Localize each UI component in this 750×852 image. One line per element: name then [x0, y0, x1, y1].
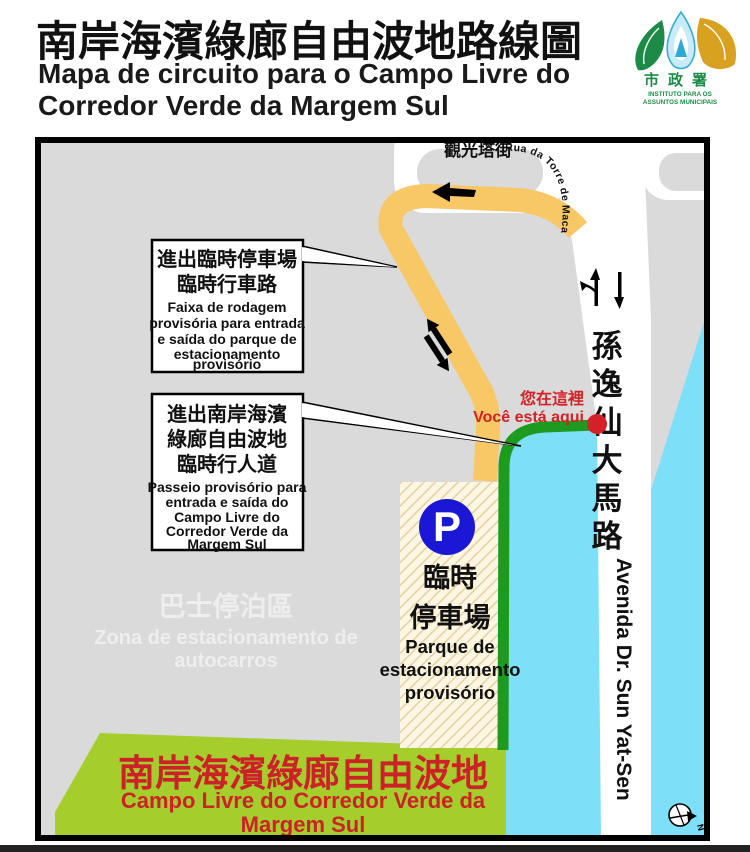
svg-text:entrada e saída do: entrada e saída do [166, 494, 289, 510]
you-are-here-latin: Você está aqui [473, 409, 584, 426]
svg-text:臨時行車路: 臨時行車路 [177, 272, 278, 296]
svg-text:Margem Sul: Margem Sul [187, 536, 266, 552]
parking-label-cjk2: 停車場 [410, 602, 491, 633]
svg-text:Passeio provisório para: Passeio provisório para [148, 479, 307, 495]
svg-text:路: 路 [592, 519, 624, 554]
water-left [504, 428, 601, 838]
svg-text:進出南岸海濱: 進出南岸海濱 [167, 402, 287, 426]
field-label-pt1: Campo Livre do Corredor Verde da [121, 788, 486, 813]
svg-text:e saída do parque de: e saída do parque de [157, 331, 296, 347]
svg-text:馬: 馬 [592, 481, 623, 516]
you-are-here-marker [587, 414, 607, 434]
svg-text:Faixa de rodagem: Faixa de rodagem [167, 299, 286, 315]
route-map: 巴士停泊區 Zona de estacionamento de autocarr… [0, 0, 750, 852]
svg-text:逸: 逸 [592, 367, 623, 402]
svg-text:provisório: provisório [193, 356, 261, 372]
parking-icon-letter: P [433, 503, 461, 550]
svg-text:provisória para entrada: provisória para entrada [149, 315, 305, 331]
avenue-name-latin: Avenida Dr. Sun Yat-Sen [612, 558, 635, 801]
svg-text:大: 大 [592, 443, 623, 478]
bottom-divider [0, 845, 750, 852]
watermark-pt-line1: Zona de estacionamento de [94, 627, 357, 649]
parking-label-pt1: Parque de [405, 636, 494, 657]
watermark-pt-line2: autocarros [174, 650, 277, 672]
street-name-cjk: 觀光塔街 [444, 140, 512, 160]
svg-text:進出臨時停車場: 進出臨時停車場 [157, 247, 297, 271]
parking-label-cjk1: 臨時 [423, 563, 477, 593]
svg-text:孫: 孫 [592, 329, 623, 364]
svg-text:臨時行人道: 臨時行人道 [177, 452, 277, 476]
parking-label-pt2: estacionamento [380, 659, 521, 680]
svg-text:綠廊自由波地: 綠廊自由波地 [167, 427, 287, 451]
parking-label-pt3: provisório [405, 682, 495, 703]
branch-island [659, 153, 729, 191]
watermark-cjk: 巴士停泊區 [159, 591, 294, 622]
field-label-pt2: Margem Sul [241, 812, 366, 837]
you-are-here-cjk: 您在這裡 [520, 389, 584, 408]
